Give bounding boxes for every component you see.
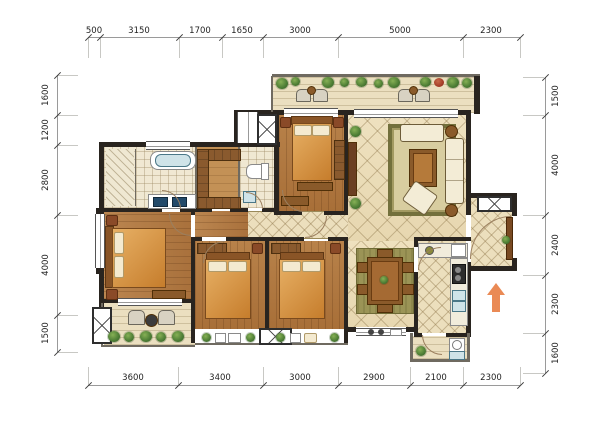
decor-cushion [304,333,317,343]
dim-label: 2300 [480,373,502,383]
dim-label: 4000 [551,148,563,182]
wall [466,110,471,215]
plant-icon [420,77,431,87]
decor-frame [215,333,226,343]
wall [414,272,418,333]
decor-icon [368,329,374,335]
dim-label: 500 [86,26,102,36]
tv-cabinet-icon [348,142,357,196]
plant-icon [124,332,134,342]
hallway-tile-runner [248,211,348,239]
pillow-icon [282,261,301,272]
plant-icon [380,276,388,284]
pillow-icon [114,256,124,278]
plant-icon [350,126,361,137]
wall [414,237,471,241]
decor-frame [228,333,241,343]
dim-line [88,385,520,386]
balcony-table-icon [307,86,316,95]
nightstand-icon [252,243,263,254]
dim-label: 3600 [122,373,144,383]
balcony-chair-icon [128,310,145,325]
wall [191,211,195,215]
plant-icon [276,333,285,342]
plant-icon [462,78,472,88]
burner [455,275,461,281]
plant-icon [202,333,211,342]
sink-icon [449,351,465,360]
dim-line [88,37,520,38]
washer-door [452,340,462,350]
balcony-rail [272,74,480,77]
plant-icon [172,331,184,342]
wall [277,211,302,215]
plant-icon [246,333,255,342]
decor-frame [290,333,301,343]
decor-icon [378,329,384,335]
coffee-table-top [413,153,433,183]
wall [512,193,517,216]
dim-label: 1600 [41,78,53,112]
pillow-icon [228,261,247,272]
plant-icon [340,78,349,87]
dim-label: 3000 [289,373,311,383]
dim-label: 5000 [389,26,411,36]
wall [414,333,422,337]
fridge-icon [451,244,466,257]
balcony-chair-icon [158,310,175,325]
wall [182,299,195,303]
wall [195,237,202,241]
balcony-table-icon [409,86,418,95]
dim-label: 2400 [551,228,563,262]
plant-icon [276,78,288,89]
wall [265,241,269,341]
chair-icon [402,284,414,295]
chair-icon [402,262,414,273]
dim-label: 2100 [425,373,447,383]
dim-label: 3400 [209,373,231,383]
dim-label: 1200 [41,113,53,147]
balcony-rail [271,76,273,112]
dim-label: 1650 [231,26,253,36]
bench-icon [152,290,186,299]
nightstand-icon [330,243,341,254]
shaft-icon [477,196,512,212]
sink-icon [452,301,466,312]
dim-label: 1500 [41,316,53,350]
dim-label: 1700 [189,26,211,36]
plant-icon [156,332,166,342]
loveseat-icon [400,124,444,142]
dim-label: 2900 [363,373,385,383]
side-table-icon [445,125,458,138]
burner [455,267,461,273]
plant-icon [447,77,459,88]
dim-label: 2300 [551,287,563,321]
wall [471,266,517,271]
dim-label: 2800 [41,163,53,197]
wall [324,211,348,215]
plant-icon [416,346,426,356]
hallway [195,211,248,237]
nightstand-icon [106,215,118,226]
sofa-icon [445,138,464,204]
side-table-icon [445,204,458,217]
plant-icon [330,333,339,342]
dim-label: 1600 [551,336,563,370]
dim-tick [517,382,524,389]
bathtub-water [155,154,191,167]
wall [99,268,104,308]
wardrobe-icon [334,140,345,180]
plant-icon [350,198,361,209]
wardrobe-icon [197,197,241,209]
pillow-icon [312,125,330,136]
dim-tick [542,370,549,377]
dim-line [545,77,546,373]
shaft-icon [237,112,258,143]
pillow-icon [114,232,124,254]
wall [191,237,195,343]
balcony-rail [102,345,195,347]
wall [99,142,104,212]
pillow-icon [294,125,312,136]
dim-label: 1500 [551,79,563,113]
balcony-table-icon [145,314,158,327]
wall [474,76,480,114]
plant-icon [356,77,367,87]
nightstand-icon [280,117,291,128]
wall [458,110,471,115]
window [95,214,105,268]
wall [467,333,470,362]
shower-screen [135,149,136,206]
shaft-icon [257,114,277,145]
sink-icon [452,290,466,301]
pillow-icon [302,261,321,272]
nightstand-icon [333,117,344,128]
plant-icon [108,331,120,342]
plant-icon [291,77,300,86]
wall [348,327,356,332]
sliding-door [354,109,458,118]
plant-icon [388,77,400,88]
plant-icon [140,331,152,342]
plant-icon [322,77,334,88]
nightstand-icon [106,289,118,300]
plant-icon [374,79,383,88]
plant-icon [502,236,510,244]
floor-plan-canvas: 500 3150 1700 1650 3000 5000 2300 3600 3… [0,0,607,444]
shower-icon [106,149,134,206]
toilet-tank [261,163,269,180]
dim-label: 4000 [41,248,53,282]
window [118,298,182,306]
decor-icon [390,329,402,336]
dim-label: 3000 [289,26,311,36]
window [146,141,190,150]
wall [338,110,354,115]
dim-label: 2300 [480,26,502,36]
wall [410,333,413,361]
flower-icon [434,78,444,87]
dim-label: 3150 [128,26,150,36]
